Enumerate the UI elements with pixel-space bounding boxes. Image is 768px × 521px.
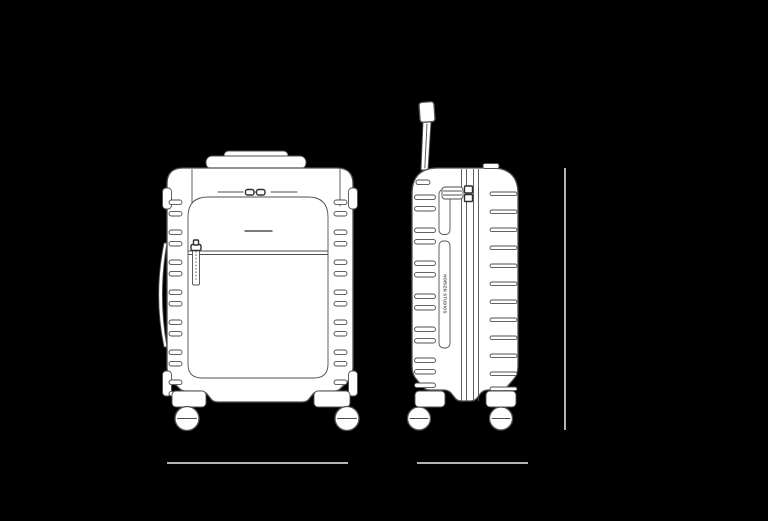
front-right-wheel — [335, 407, 359, 431]
pocket-zipper-vertical — [191, 240, 201, 285]
suitcase-side-view: HORIZN STUDIOS — [408, 102, 519, 430]
luggage-dimension-diagram: HORIZN STUDIOS — [0, 0, 768, 521]
side-right-wheel — [490, 407, 513, 430]
side-carry-handle — [159, 243, 167, 347]
telescopic-handle — [419, 102, 435, 170]
brand-label: HORIZN STUDIOS — [443, 274, 448, 313]
handle-rail-housing — [442, 187, 463, 199]
diagram-svg: HORIZN STUDIOS — [0, 0, 768, 521]
side-left-wheel — [408, 407, 431, 430]
suitcase-front-view — [159, 151, 359, 431]
brand-slat: HORIZN STUDIOS — [439, 241, 450, 348]
top-carry-handle — [206, 151, 306, 169]
front-pocket — [188, 197, 328, 378]
front-left-wheel — [175, 407, 199, 431]
side-top-handle-bump — [483, 164, 499, 169]
